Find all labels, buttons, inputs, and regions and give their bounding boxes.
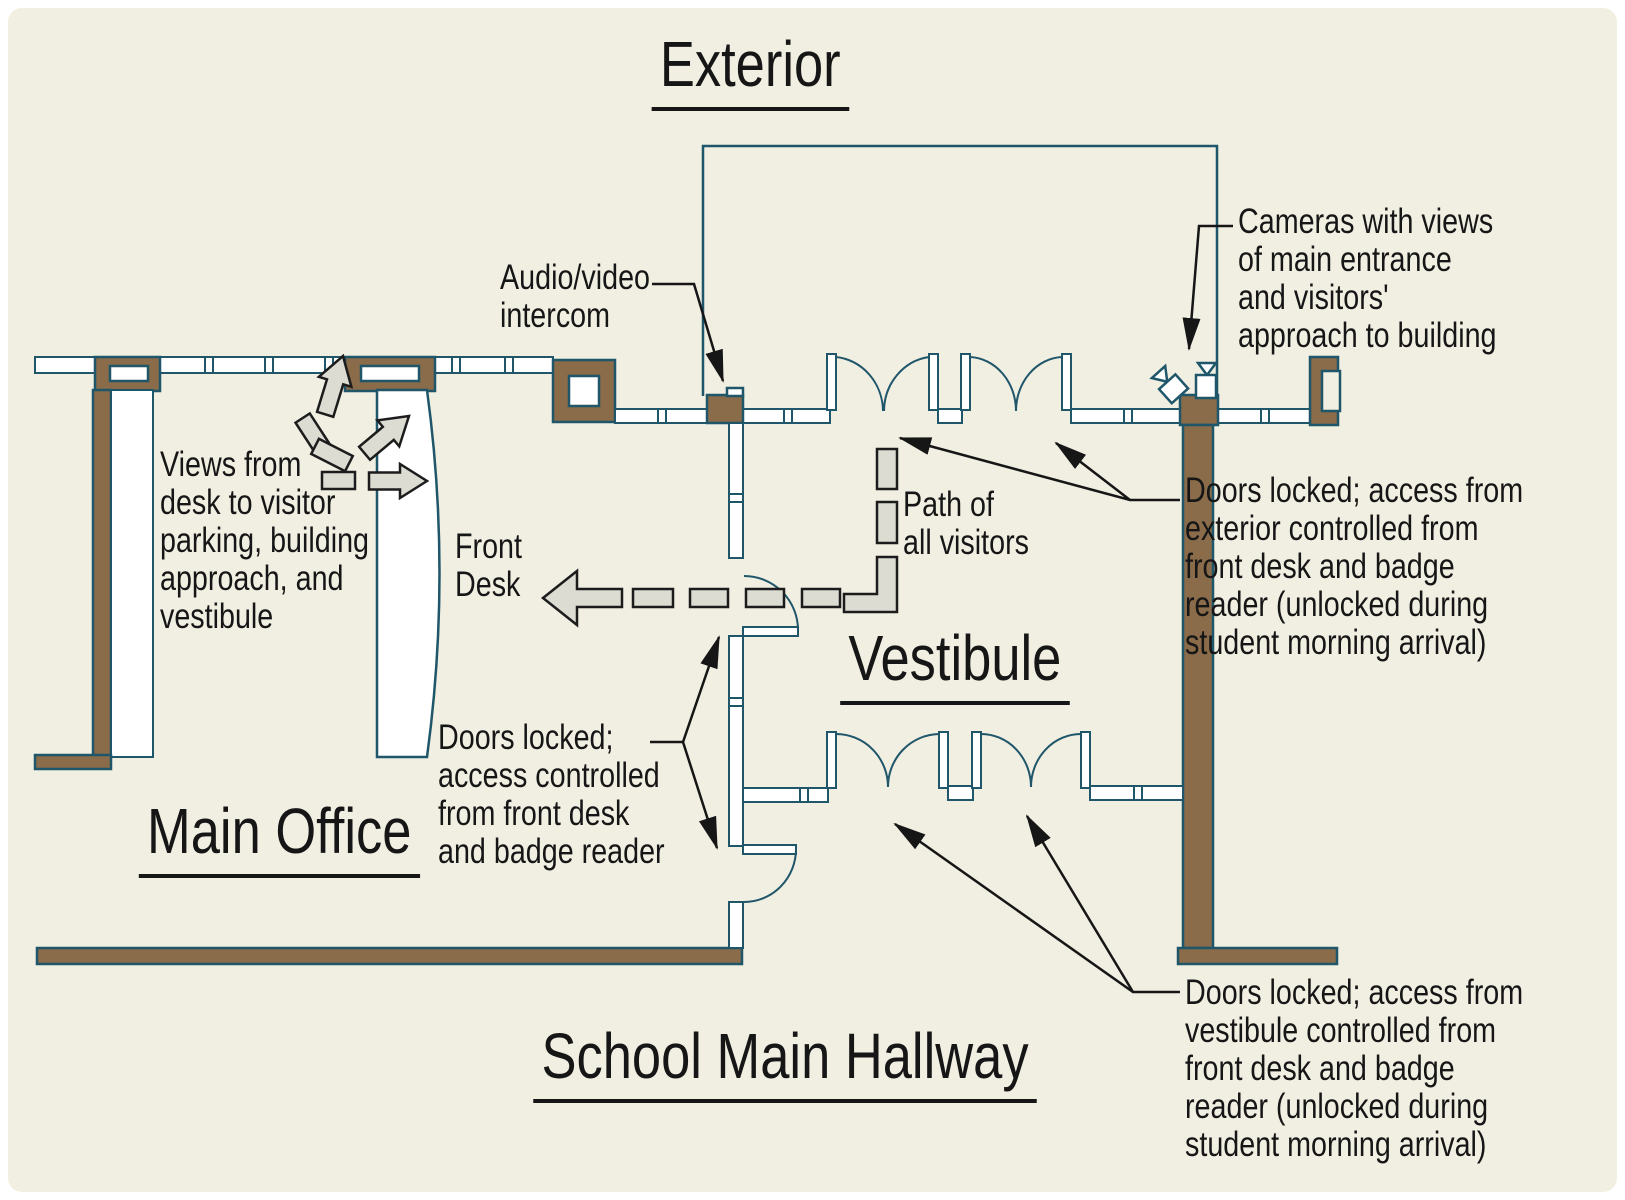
note-line: Views from	[160, 446, 369, 484]
room-title-text: Vestibule	[840, 621, 1069, 705]
note-line: vestibule	[160, 598, 369, 636]
note-line: approach, and	[160, 560, 369, 598]
office-vestibule-wall	[729, 423, 828, 948]
cameras-note: Cameras with views of main entrance and …	[1238, 203, 1497, 355]
note-line: front desk and badge	[1185, 548, 1523, 586]
note-line: student morning arrival)	[1185, 624, 1523, 662]
note-line: from front desk	[438, 795, 665, 833]
note-line: Front	[455, 528, 522, 566]
note-line: parking, building	[160, 522, 369, 560]
note-line: Doors locked; access from	[1185, 974, 1523, 1012]
room-label-exterior: Exterior	[630, 27, 810, 111]
room-title-text: Main Office	[139, 794, 420, 878]
note-line: exterior controlled from	[1185, 510, 1523, 548]
note-line: approach to building	[1238, 317, 1497, 355]
leader-cameras	[1189, 226, 1233, 349]
note-line: and visitors'	[1238, 279, 1497, 317]
note-line: of main entrance	[1238, 241, 1497, 279]
office-west-wall	[35, 390, 153, 769]
leader-exterior-doors-2	[1056, 443, 1130, 500]
note-line: access controlled	[438, 757, 665, 795]
note-line: Desk	[455, 566, 522, 604]
note-line: intercom	[500, 297, 650, 335]
note-line: student morning arrival)	[1185, 1126, 1523, 1164]
leader-vestibule-doors-2	[1027, 816, 1133, 992]
front-desk-label: Front Desk	[455, 528, 522, 604]
exterior-doors	[827, 354, 1071, 411]
vestibule-doors	[827, 732, 1183, 800]
office-doors-note: Doors locked; access controlled from fro…	[438, 719, 665, 871]
note-line: Cameras with views	[1238, 203, 1497, 241]
office-lower-door	[743, 845, 796, 902]
east-door-jamb	[1310, 357, 1340, 425]
views-note: Views from desk to visitor parking, buil…	[160, 446, 369, 636]
note-line: reader (unlocked during	[1185, 586, 1523, 624]
diagram-page: Exterior Vestibule Main Office School Ma…	[0, 0, 1625, 1200]
room-label-vestibule: Vestibule	[815, 621, 1030, 705]
visitor-path	[543, 449, 897, 625]
leader-intercom	[652, 284, 723, 381]
leader-vestibule-doors-1	[895, 824, 1180, 992]
hallway-southeast-wall	[1178, 948, 1337, 964]
hollow-column	[553, 360, 615, 422]
path-label: Path of all visitors	[903, 486, 1029, 562]
note-line: Doors locked; access from	[1185, 472, 1523, 510]
room-label-hallway: School Main Hallway	[478, 1019, 978, 1103]
vestibule-doors-note: Doors locked; access from vestibule cont…	[1185, 974, 1523, 1164]
room-title-text: Exterior	[652, 27, 849, 111]
leader-office-door-lower	[683, 742, 717, 848]
office-south-wall	[37, 948, 742, 964]
security-camera-icon	[1196, 363, 1216, 398]
exterior-doors-note: Doors locked; access from exterior contr…	[1185, 472, 1523, 662]
wall-pier-west	[95, 357, 160, 391]
wall-pier-desk	[345, 357, 435, 391]
annotation-leaders	[650, 226, 1233, 992]
note-line: and badge reader	[438, 833, 665, 871]
note-line: Audio/video	[500, 259, 650, 297]
note-line: reader (unlocked during	[1185, 1088, 1523, 1126]
intercom-note: Audio/video intercom	[500, 259, 650, 335]
room-title-text: School Main Hallway	[533, 1019, 1037, 1103]
note-line: vestibule controlled from	[1185, 1012, 1523, 1050]
note-line: all visitors	[903, 524, 1029, 562]
note-line: desk to visitor	[160, 484, 369, 522]
note-line: Doors locked;	[438, 719, 665, 757]
intercom-wall-block	[707, 388, 743, 423]
visitor-path-arrow-icon	[543, 571, 622, 625]
camera-wall-pier	[1180, 395, 1218, 425]
room-label-main-office: Main Office	[108, 794, 398, 878]
note-line: Path of	[903, 486, 1029, 524]
note-line: front desk and badge	[1185, 1050, 1523, 1088]
